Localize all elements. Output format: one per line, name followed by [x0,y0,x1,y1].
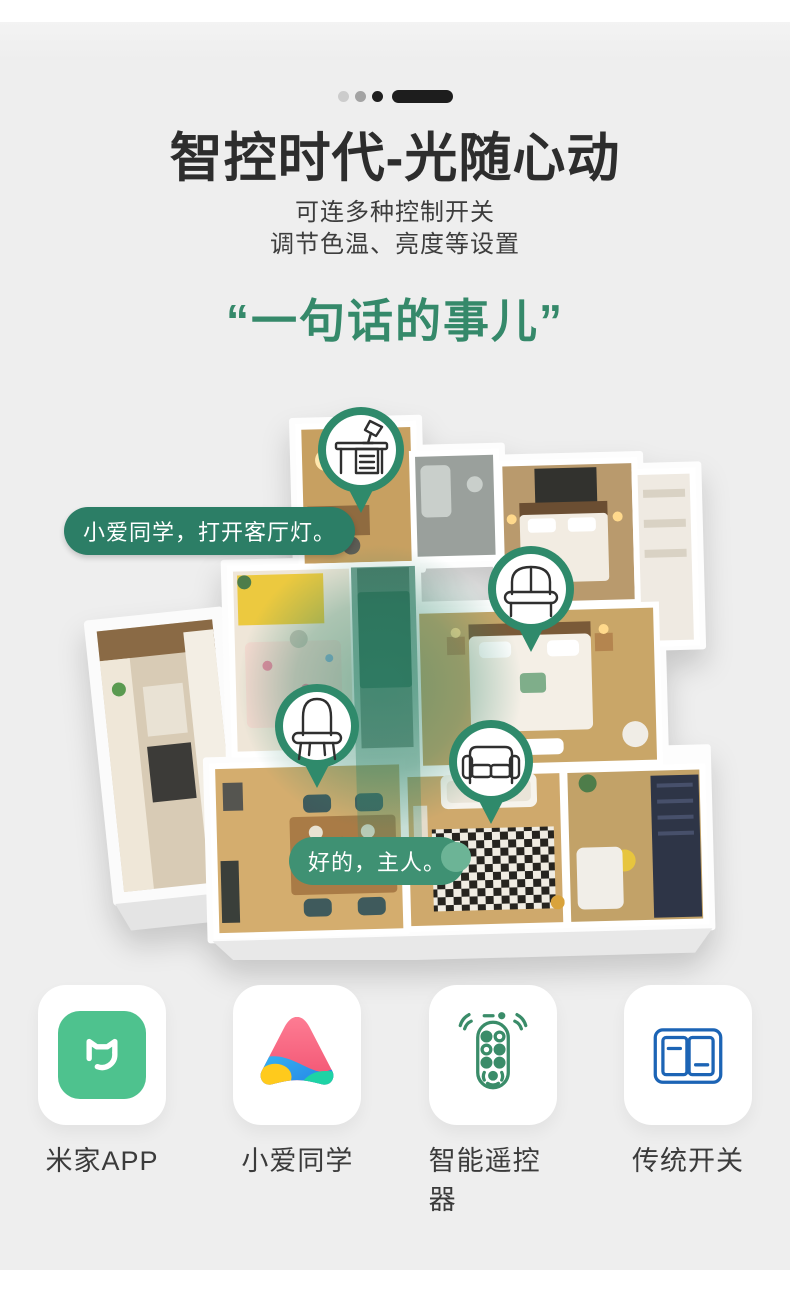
feature-xiaoai: 小爱同学 [233,985,361,1217]
feature-label: 传统开关 [632,1139,744,1178]
voice-command-bubble: 小爱同学，打开客厅灯。 [64,507,355,555]
carousel-dot-icon [338,91,349,102]
carousel-active-bar-icon [392,90,453,103]
apartment-scene: 小爱同学，打开客厅灯。 好的，主人。 [0,385,790,960]
room-bathroom [412,452,499,560]
feature-label: 小爱同学 [241,1139,353,1178]
feature-mijia-app: 米家APP [38,985,166,1217]
voice-reply-text: 好的，主人。 [308,850,446,875]
carousel-dot-icon [372,91,383,102]
feature-card [429,985,557,1125]
mijia-app-icon [58,1011,146,1099]
control-methods-row: 米家APP [0,985,790,1217]
feature-smart-remote: 智能遥控器 [429,985,557,1217]
smart-remote-icon [445,1007,541,1103]
feature-wall-switch: 传统开关 [624,985,752,1217]
feature-card [233,985,361,1125]
feature-card [624,985,752,1125]
feature-label: 米家APP [45,1139,158,1178]
voice-reply-bubble: 好的，主人。 [289,837,465,885]
promo-page: 智控时代-光随心动 可连多种控制开关 调节色温、亮度等设置 “一句话的事儿” [0,0,790,1290]
room-balcony [564,766,706,925]
page-title: 智控时代-光随心动 [0,116,790,192]
voice-command-text: 小爱同学，打开客厅灯。 [83,520,336,545]
slogan-quote: “一句话的事儿” [0,285,790,351]
carousel-dot-icon [355,91,366,102]
feature-card [38,985,166,1125]
wall-switch-icon [640,1007,736,1103]
carousel-indicator [0,90,790,103]
subtitle-line-1: 可连多种控制开关 [0,192,790,227]
feature-label: 智能遥控器 [429,1139,557,1217]
subtitle-line-2: 调节色温、亮度等设置 [0,224,790,259]
xiaoai-assistant-icon [249,1007,345,1103]
